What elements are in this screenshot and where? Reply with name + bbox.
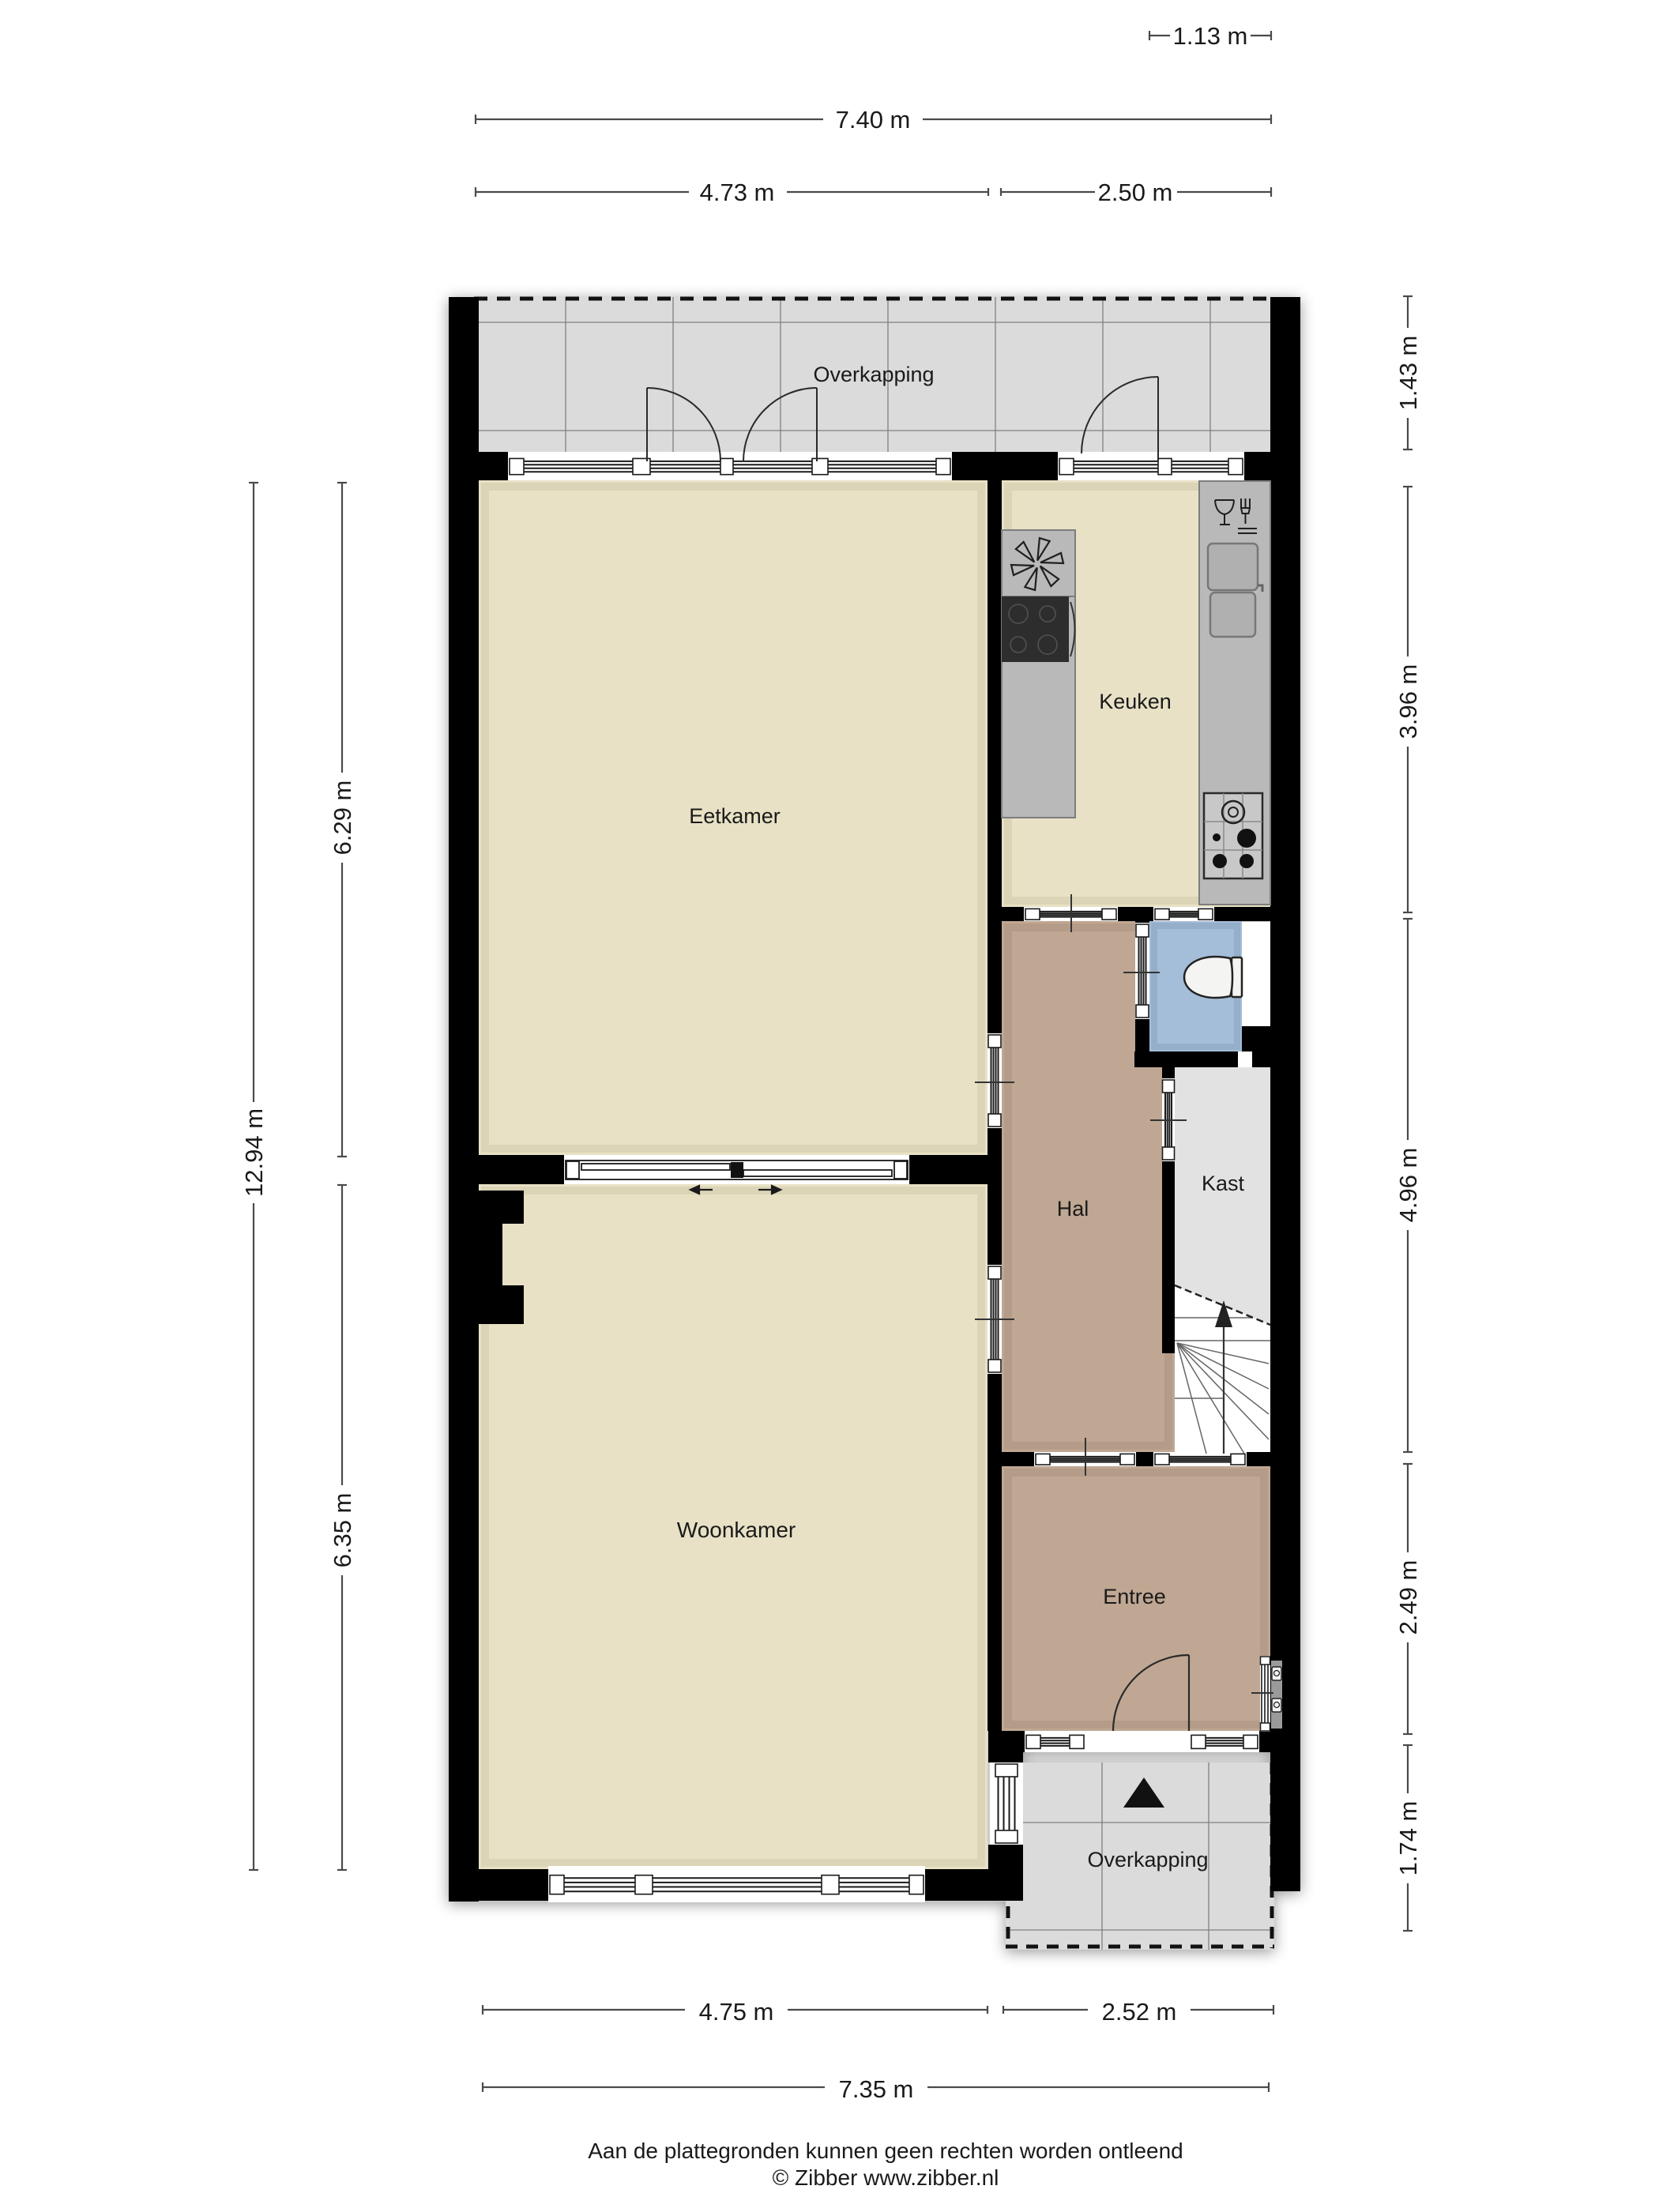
svg-text:Overkapping: Overkapping: [813, 363, 934, 386]
svg-text:1.74 m: 1.74 m: [1394, 1801, 1422, 1876]
svg-text:4.75 m: 4.75 m: [699, 1998, 774, 2026]
svg-text:7.40 m: 7.40 m: [836, 106, 911, 134]
svg-text:Aan de plattegronden kunnen ge: Aan de plattegronden kunnen geen rechten…: [588, 2139, 1183, 2163]
svg-text:4.96 m: 4.96 m: [1394, 1148, 1422, 1223]
svg-text:2.52 m: 2.52 m: [1102, 1998, 1177, 2026]
svg-text:Hal: Hal: [1057, 1197, 1089, 1221]
svg-text:© Zibber www.zibber.nl: © Zibber www.zibber.nl: [773, 2165, 999, 2190]
svg-text:Overkapping: Overkapping: [1087, 1848, 1208, 1872]
svg-text:4.73 m: 4.73 m: [700, 179, 775, 206]
svg-text:Kast: Kast: [1202, 1172, 1245, 1195]
svg-text:6.35 m: 6.35 m: [329, 1493, 356, 1568]
svg-text:Eetkamer: Eetkamer: [689, 804, 781, 828]
svg-text:Entree: Entree: [1103, 1585, 1166, 1608]
svg-text:7.35 m: 7.35 m: [839, 2075, 914, 2103]
svg-text:1.43 m: 1.43 m: [1394, 336, 1422, 411]
svg-text:2.50 m: 2.50 m: [1098, 179, 1173, 206]
svg-text:12.94 m: 12.94 m: [240, 1108, 268, 1197]
svg-text:Keuken: Keuken: [1099, 690, 1172, 713]
svg-text:3.96 m: 3.96 m: [1394, 664, 1422, 739]
svg-text:2.49 m: 2.49 m: [1394, 1560, 1422, 1635]
svg-text:6.29 m: 6.29 m: [329, 781, 356, 856]
svg-text:1.13 m: 1.13 m: [1173, 22, 1248, 50]
svg-text:Woonkamer: Woonkamer: [677, 1518, 796, 1542]
